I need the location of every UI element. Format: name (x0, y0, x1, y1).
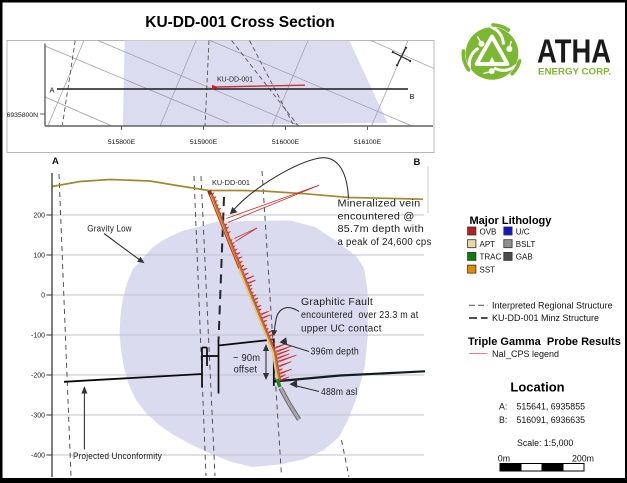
svg-text:TRAC: TRAC (480, 253, 502, 262)
svg-text:~ 90m: ~ 90m (233, 353, 260, 364)
svg-text:516091, 6936635: 516091, 6936635 (517, 415, 586, 425)
svg-text:-300: -300 (31, 413, 45, 420)
svg-text:Scale: 1:5,000: Scale: 1:5,000 (517, 438, 573, 448)
svg-text:upper UC contact: upper UC contact (301, 323, 382, 334)
svg-text:ENERGY CORP.: ENERGY CORP. (538, 67, 611, 78)
svg-text:515800E: 515800E (108, 139, 136, 146)
svg-text:a peak of 24,600 cps: a peak of 24,600 cps (338, 237, 432, 248)
svg-text:Mineralized vein: Mineralized vein (338, 199, 421, 210)
svg-text:Interpreted Regional Structure: Interpreted Regional Structure (492, 300, 613, 310)
svg-text:APT: APT (480, 240, 496, 249)
svg-text:85.7m depth with: 85.7m depth with (338, 224, 425, 235)
svg-text:encountered @: encountered @ (338, 212, 415, 223)
svg-text:A: A (52, 156, 59, 167)
svg-text:B:: B: (499, 415, 507, 425)
svg-text:U/C: U/C (516, 227, 530, 236)
svg-text:100: 100 (33, 253, 45, 260)
svg-text:516000E: 516000E (272, 139, 300, 146)
svg-text:Projected Unconformity: Projected Unconformity (73, 451, 162, 461)
svg-text:516100E: 516100E (354, 139, 382, 146)
svg-text:encountered over 23.3 m at: encountered over 23.3 m at (301, 310, 418, 321)
svg-text:200m: 200m (572, 454, 594, 464)
svg-text:A: A (50, 85, 55, 94)
svg-text:515641, 6935855: 515641, 6935855 (517, 402, 586, 412)
svg-text:KU-DD-001 Cross Section: KU-DD-001 Cross Section (145, 14, 335, 31)
svg-text:488m asl: 488m asl (321, 387, 357, 398)
svg-text:0: 0 (41, 293, 45, 300)
svg-text:NaI_CPS legend: NaI_CPS legend (492, 349, 559, 359)
svg-text:Gravity Low: Gravity Low (87, 223, 132, 234)
svg-text:B: B (414, 157, 421, 168)
svg-text:A:: A: (499, 402, 507, 412)
svg-text:Major Lithology: Major Lithology (470, 215, 553, 227)
svg-text:-400: -400 (31, 453, 45, 460)
svg-text:KU-DD-001: KU-DD-001 (212, 178, 250, 187)
svg-text:-100: -100 (31, 333, 45, 340)
svg-text:GAB: GAB (516, 253, 533, 262)
svg-text:B: B (410, 92, 415, 101)
svg-text:-200: -200 (31, 373, 45, 380)
svg-text:BSLT: BSLT (516, 240, 536, 249)
svg-text:SST: SST (480, 265, 496, 274)
svg-text:ATHA: ATHA (537, 32, 611, 69)
svg-text:6935800N: 6935800N (7, 112, 38, 119)
svg-text:Triple Gamma Probe Results: Triple Gamma Probe Results (468, 336, 621, 348)
svg-text:KU-DD-001 Minz Structure: KU-DD-001 Minz Structure (492, 313, 599, 323)
svg-text:OVB: OVB (480, 227, 497, 236)
svg-text:Graphitic Fault: Graphitic Fault (301, 297, 373, 308)
svg-text:515900E: 515900E (190, 139, 218, 146)
svg-text:200: 200 (33, 213, 45, 220)
svg-text:KU-DD-001: KU-DD-001 (217, 77, 253, 84)
svg-text:offset: offset (234, 365, 258, 376)
svg-text:Location: Location (510, 380, 564, 395)
svg-text:396m depth: 396m depth (311, 347, 360, 358)
svg-text:0m: 0m (498, 454, 510, 464)
